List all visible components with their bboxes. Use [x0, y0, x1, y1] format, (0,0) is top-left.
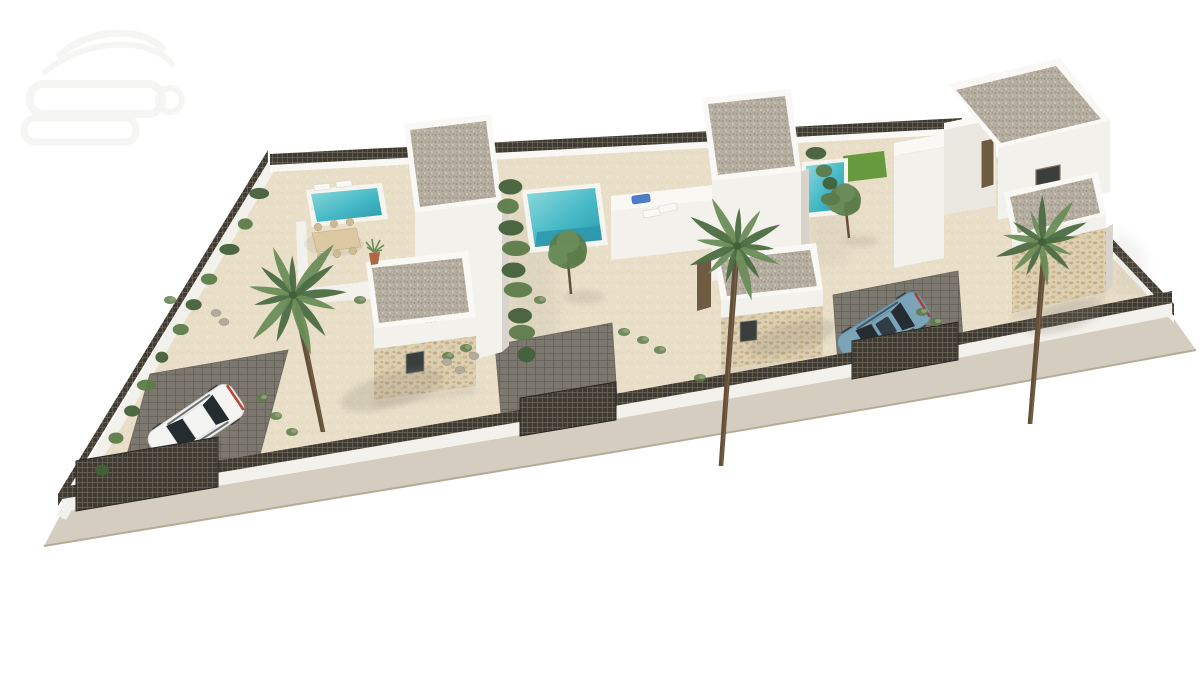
shrub	[460, 344, 472, 352]
villa2-window	[740, 320, 757, 342]
rock	[469, 352, 479, 359]
shrub	[637, 336, 649, 344]
shrub	[354, 296, 366, 304]
sun-lounger	[314, 183, 331, 191]
shrub	[930, 318, 942, 326]
shrub	[654, 346, 666, 354]
shrub	[164, 296, 176, 304]
shrub	[286, 428, 298, 436]
villa1-wing-gravel-roof	[372, 258, 469, 323]
render-canvas: Aerial 3D architectural rendering of a w…	[0, 0, 1200, 675]
villa1-tower-gravel-roof	[410, 121, 496, 207]
shrub	[916, 308, 928, 316]
lawn-patch	[843, 151, 887, 182]
villa-render: Aerial 3D architectural rendering of a w…	[0, 0, 1200, 675]
shrub	[256, 394, 268, 402]
shrub	[618, 328, 630, 336]
rock	[455, 366, 465, 373]
rock	[219, 318, 229, 325]
villa3-side-wall	[1106, 224, 1113, 292]
rock	[442, 358, 452, 365]
shrub	[270, 412, 282, 420]
villa2-door	[697, 260, 711, 311]
shrub	[694, 374, 706, 382]
rock	[211, 309, 221, 316]
villa2-tower-gravel-roof	[708, 96, 795, 175]
shrub	[534, 296, 546, 304]
villa3-door	[981, 138, 994, 189]
villa3-left-wing-wall	[894, 147, 944, 268]
